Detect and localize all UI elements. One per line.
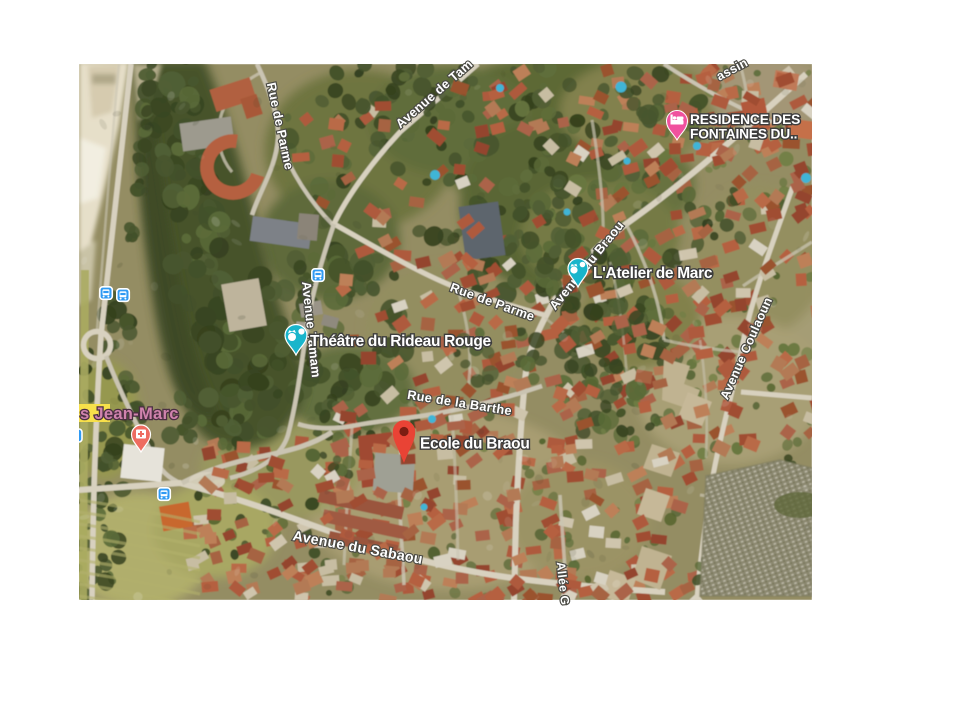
- svg-text:Ecole du Braou: Ecole du Braou: [420, 436, 530, 453]
- svg-text:s Jean-Marc: s Jean-Marc: [80, 405, 179, 423]
- svg-text:Théâtre du Rideau Rouge: Théâtre du Rideau Rouge: [310, 333, 492, 350]
- svg-text:RESIDENCE DES: RESIDENCE DES: [690, 112, 800, 127]
- svg-text:FONTAINES DU..: FONTAINES DU..: [690, 127, 797, 142]
- svg-text:L'Atelier de Marc: L'Atelier de Marc: [593, 265, 713, 282]
